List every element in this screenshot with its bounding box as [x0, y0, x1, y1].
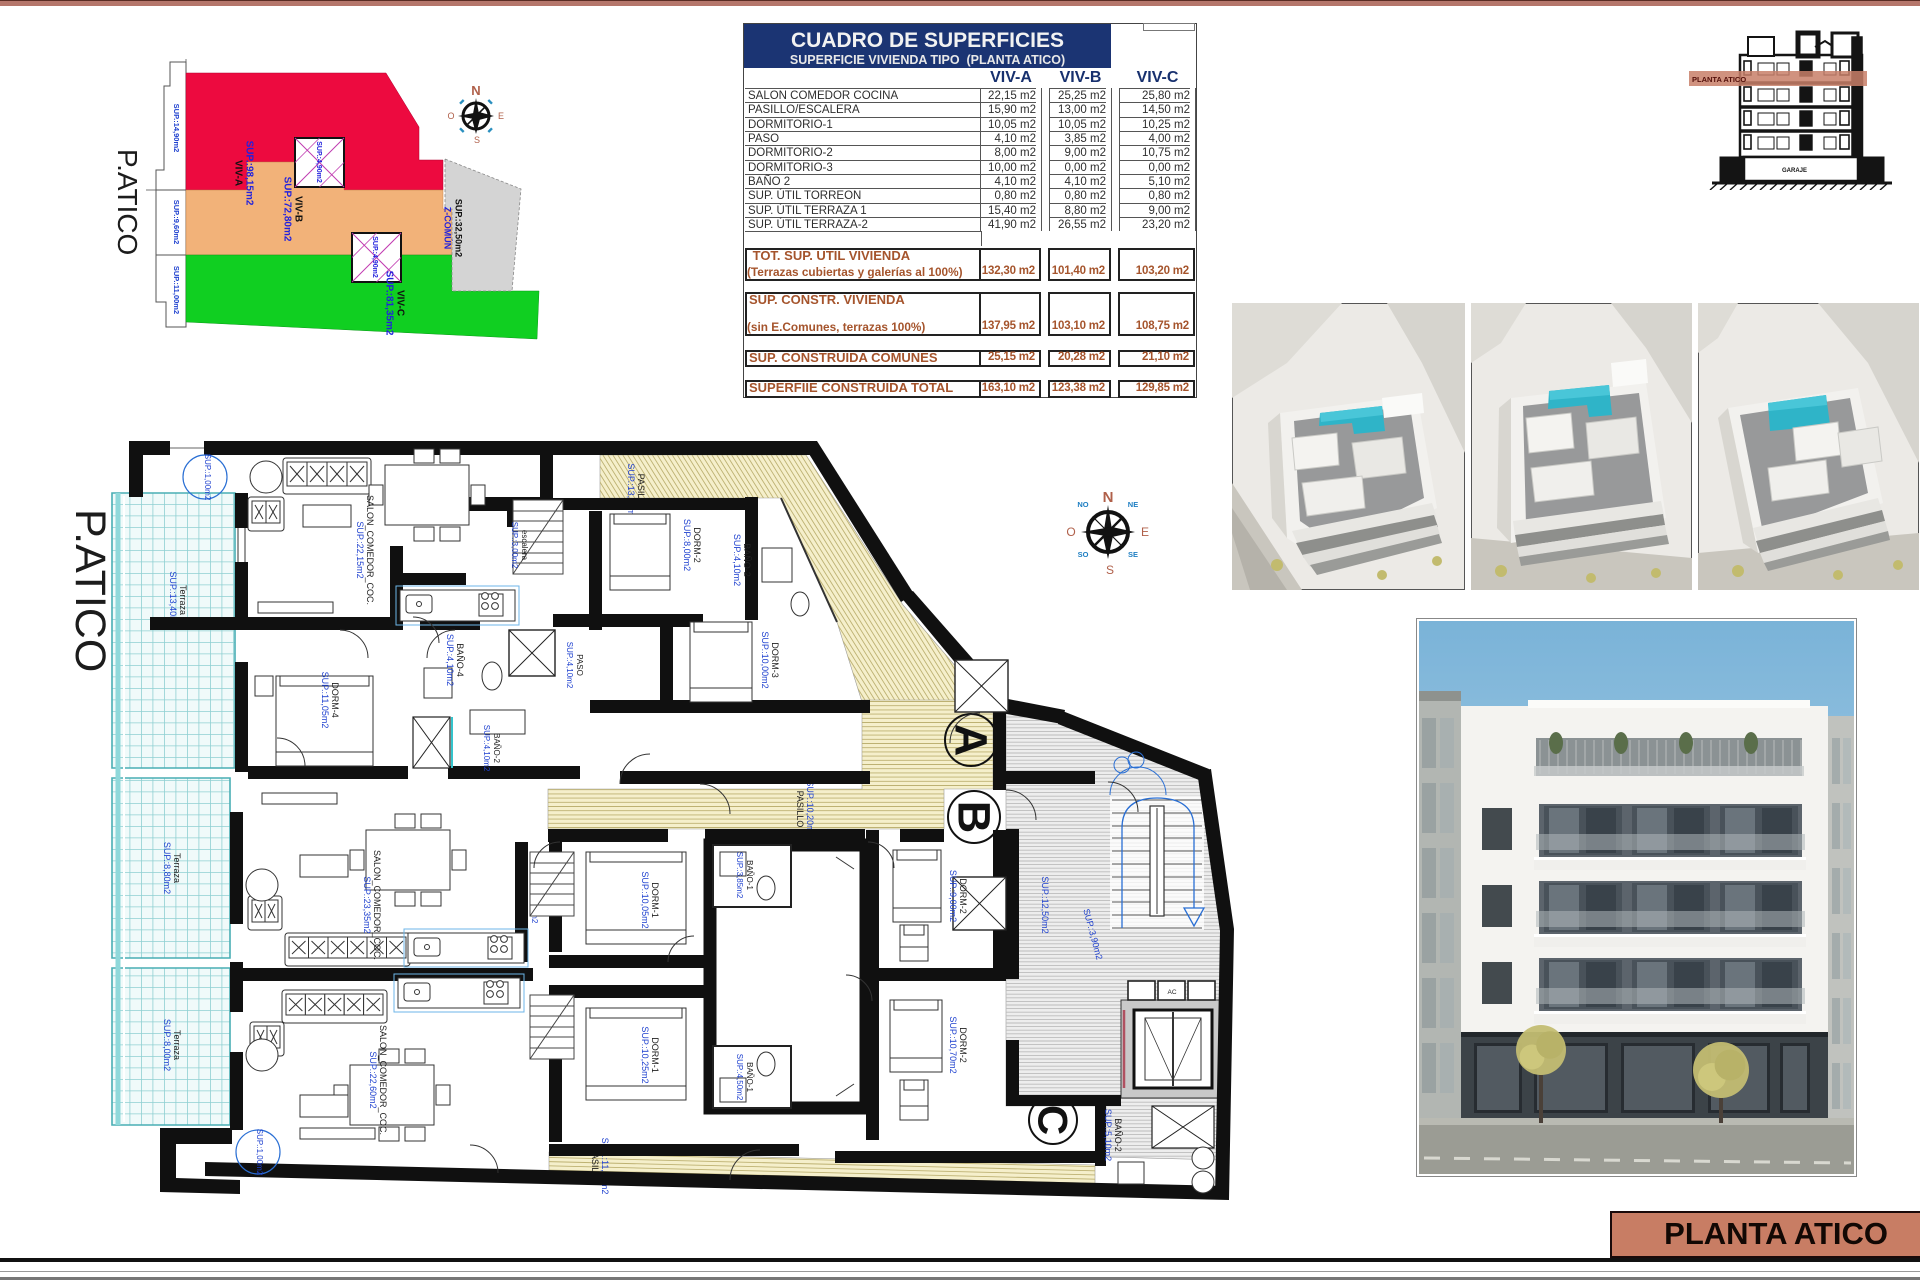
svg-text:Terraza: Terraza [172, 853, 182, 883]
svg-text:O: O [447, 111, 454, 121]
svg-text:Z-COMÚN: Z-COMÚN [443, 207, 454, 250]
svg-text:DORM-3: DORM-3 [770, 642, 780, 678]
svg-text:VIV-B: VIV-B [293, 196, 304, 222]
svg-text:SUP.:4,10m2: SUP.:4,10m2 [482, 725, 491, 772]
svg-text:SE: SE [1128, 550, 1138, 559]
svg-text:SUP.:4,90m2: SUP.:4,90m2 [371, 236, 378, 278]
svg-text:SUP.:22,15m2: SUP.:22,15m2 [355, 521, 365, 578]
svg-text:SUP.:11,00m2: SUP.:11,00m2 [172, 266, 181, 314]
svg-text:SUP.:10,70m2: SUP.:10,70m2 [948, 1016, 958, 1073]
svg-text:S: S [474, 135, 480, 145]
svg-text:SUP.:98,15m2: SUP.:98,15m2 [244, 141, 255, 206]
svg-text:BAÑO-1: BAÑO-1 [745, 860, 754, 890]
svg-text:SUP.:9,60m2: SUP.:9,60m2 [172, 200, 181, 244]
svg-text:DORM-1: DORM-1 [650, 882, 660, 918]
svg-text:SUP.:8,80m2: SUP.:8,80m2 [162, 842, 172, 894]
svg-text:SALON_COMEDOR_COC.: SALON_COMEDOR_COC. [372, 850, 382, 960]
svg-text:SUP.:23,35m2: SUP.:23,35m2 [362, 876, 372, 933]
svg-text:SUP.:72,80m2: SUP.:72,80m2 [282, 177, 293, 242]
svg-text:SUP.:22,60m2: SUP.:22,60m2 [368, 1051, 378, 1108]
svg-text:VIV-C: VIV-C [395, 290, 406, 316]
svg-text:BAÑO-2: BAÑO-2 [492, 733, 501, 763]
svg-text:PASO: PASO [575, 654, 584, 676]
svg-text:SUP.:4,10m2: SUP.:4,10m2 [565, 642, 574, 689]
svg-text:GARAJE: GARAJE [1782, 168, 1807, 174]
svg-text:O: O [1066, 525, 1075, 539]
svg-text:SUP.:3,00m2: SUP.:3,00m2 [510, 522, 519, 569]
svg-text:SUP.:4,50m2: SUP.:4,50m2 [735, 1054, 744, 1101]
svg-text:PASILLO: PASILLO [795, 791, 805, 828]
svg-text:SUP.:5,10m2: SUP.:5,10m2 [1103, 1109, 1113, 1161]
svg-text:SUP.:14,90m2: SUP.:14,90m2 [172, 104, 181, 153]
svg-text:PLANTA ATICO: PLANTA ATICO [1692, 75, 1746, 84]
svg-text:SUP.:8,00m2: SUP.:8,00m2 [682, 519, 692, 571]
svg-text:SUP.:12,50m2: SUP.:12,50m2 [1040, 876, 1050, 933]
svg-text:SUP.:32,50m2: SUP.:32,50m2 [454, 199, 464, 257]
svg-text:N: N [1103, 489, 1114, 506]
svg-text:SUP.:4,10m2: SUP.:4,10m2 [445, 634, 455, 686]
svg-text:SUP.:4,90m2: SUP.:4,90m2 [315, 141, 322, 183]
svg-text:B: B [949, 801, 1000, 834]
svg-text:BAÑO-1: BAÑO-1 [745, 1062, 754, 1092]
svg-text:SUP.:10,00m2: SUP.:10,00m2 [760, 631, 770, 688]
svg-text:SUP.:4,10m2: SUP.:4,10m2 [732, 534, 742, 586]
svg-text:Terraza: Terraza [172, 1030, 182, 1060]
svg-text:SUP.:10,25m2: SUP.:10,25m2 [640, 1026, 650, 1083]
svg-text:SUP.:81,35m2: SUP.:81,35m2 [384, 271, 395, 336]
svg-text:SUP.:13,00m2: SUP.:13,00m2 [626, 463, 636, 520]
svg-text:SUP.:11,05m2: SUP.:11,05m2 [320, 672, 330, 729]
svg-text:BAÑO-2: BAÑO-2 [742, 543, 752, 577]
svg-text:DORM-4: DORM-4 [330, 682, 340, 718]
svg-text:DORM-2: DORM-2 [958, 878, 968, 914]
svg-text:DORM-2: DORM-2 [958, 1027, 968, 1063]
svg-text:Terraza: Terraza [178, 585, 188, 615]
svg-text:C: C [1030, 1105, 1077, 1135]
svg-text:SUP.:1,00m2: SUP.:1,00m2 [203, 454, 212, 501]
svg-text:BAÑO-2: BAÑO-2 [1113, 1118, 1123, 1152]
svg-text:DORM-1: DORM-1 [650, 1037, 660, 1073]
svg-text:N: N [471, 83, 480, 98]
svg-text:SUP.:10,05m2: SUP.:10,05m2 [640, 871, 650, 928]
svg-text:DORM-2: DORM-2 [692, 527, 702, 563]
svg-text:SUP.:9,00m2: SUP.:9,00m2 [948, 870, 958, 922]
svg-text:SUP.:1,00m2: SUP.:1,00m2 [255, 1129, 264, 1176]
svg-text:S: S [1106, 563, 1114, 577]
svg-text:NE: NE [1128, 500, 1138, 509]
svg-text:E: E [498, 111, 504, 121]
svg-text:NO: NO [1077, 500, 1088, 509]
svg-text:AC: AC [1167, 989, 1176, 996]
svg-text:SUP.:8,00m2: SUP.:8,00m2 [162, 1019, 172, 1071]
svg-text:E: E [1141, 525, 1149, 539]
svg-text:SALON_COMEDOR_COC.: SALON_COMEDOR_COC. [378, 1025, 388, 1135]
svg-text:BAÑO-4: BAÑO-4 [455, 643, 465, 677]
svg-text:SALON_COMEDOR_COC.: SALON_COMEDOR_COC. [365, 495, 375, 605]
svg-text:SUP.:3,85m2: SUP.:3,85m2 [735, 852, 744, 899]
svg-text:escalera: escalera [520, 530, 529, 561]
svg-text:SO: SO [1078, 550, 1089, 559]
svg-text:VIV-A: VIV-A [233, 160, 244, 186]
